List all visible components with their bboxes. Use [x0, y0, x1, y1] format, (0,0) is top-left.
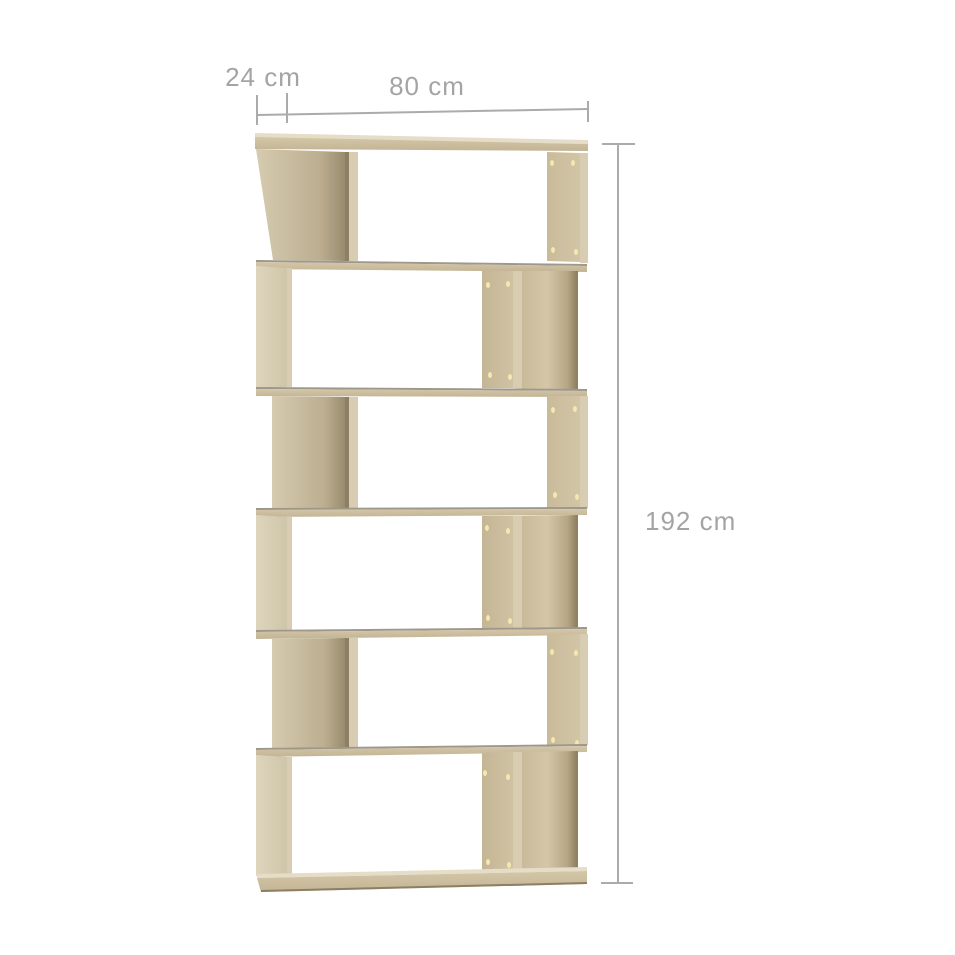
tier-1-left-panel [256, 149, 345, 261]
tier-4-right-section [522, 515, 578, 629]
tier-2-left-front-edge [287, 268, 292, 387]
screw-hole [486, 282, 490, 288]
tier-5-right-panel-front-edge [580, 634, 588, 745]
tier-4-left-front-edge [287, 517, 292, 630]
height-label: 192 cm [645, 506, 736, 536]
tier-6-divider-panel [482, 752, 513, 871]
depth-label: 24 cm [225, 62, 301, 92]
tier-4-divider-front-edge [513, 516, 522, 629]
tier-6-right-section [522, 751, 578, 869]
screw-hole [553, 492, 557, 498]
screw-hole [508, 374, 512, 380]
tier-1-left-panel-corner-shadow [345, 152, 349, 261]
tier-2-divider-front-edge [513, 271, 522, 389]
screw-hole [486, 615, 490, 621]
shelf-board-5 [256, 627, 587, 639]
screw-hole [508, 618, 512, 624]
tier-5 [272, 634, 588, 748]
screw-hole [571, 160, 575, 166]
tier-6-left-front-edge [287, 757, 292, 874]
screw-hole [575, 494, 579, 500]
tier-1-right-panel [547, 152, 580, 262]
shelf-board-4 [256, 507, 587, 517]
tier-6 [256, 751, 578, 876]
tier-2 [256, 266, 578, 389]
screw-hole [488, 372, 492, 378]
tier-6-divider-front-edge [513, 752, 522, 870]
height-dimension: 192 cm [601, 144, 736, 883]
tier-3-left-panel-front-edge [349, 397, 358, 509]
bottom-board [257, 867, 587, 892]
shelf-board-2 [256, 260, 587, 272]
tier-5-left-panel-front-edge [349, 638, 358, 747]
tier-3-right-panel [547, 396, 580, 508]
bookshelf [255, 133, 588, 892]
tier-3 [272, 396, 588, 509]
tier-1-left-panel-front-edge [349, 152, 358, 261]
top-dimension-line [257, 109, 588, 115]
tier-5-left-panel-corner-shadow [345, 638, 349, 747]
screw-hole [506, 281, 510, 287]
bookshelf-diagram: 24 cm 80 cm 192 cm [0, 0, 955, 955]
tier-2-divider-panel [482, 271, 513, 388]
tier-5-left-panel [272, 638, 345, 748]
screw-hole [550, 160, 554, 166]
tier-2-left-side-face [256, 266, 287, 389]
product-dimension-image: 24 cm 80 cm 192 cm [0, 0, 955, 955]
width-depth-dimension: 24 cm 80 cm [225, 62, 588, 125]
screw-hole [573, 406, 577, 412]
tier-3-left-panel [272, 396, 345, 509]
tier-2-right-section [522, 271, 578, 389]
screw-hole [574, 249, 578, 255]
tier-4 [256, 515, 578, 632]
screw-hole [485, 525, 489, 531]
screw-hole [506, 774, 510, 780]
screw-hole [483, 770, 487, 776]
tier-4-left-side-face [256, 515, 287, 632]
screw-hole [551, 737, 555, 743]
screw-hole [551, 247, 555, 253]
tier-6-left-side-face [256, 755, 287, 876]
screw-hole [506, 528, 510, 534]
tier-3-left-panel-corner-shadow [345, 397, 349, 509]
screw-hole [550, 649, 554, 655]
tier-3-right-panel-front-edge [580, 396, 588, 508]
screw-hole [574, 650, 578, 656]
screw-hole [507, 862, 511, 868]
width-label: 80 cm [389, 71, 465, 101]
tier-1-right-panel-front-edge [580, 153, 588, 263]
top-board [255, 133, 588, 151]
tier-1 [256, 149, 588, 263]
screw-hole [486, 859, 490, 865]
screw-hole [551, 407, 555, 413]
